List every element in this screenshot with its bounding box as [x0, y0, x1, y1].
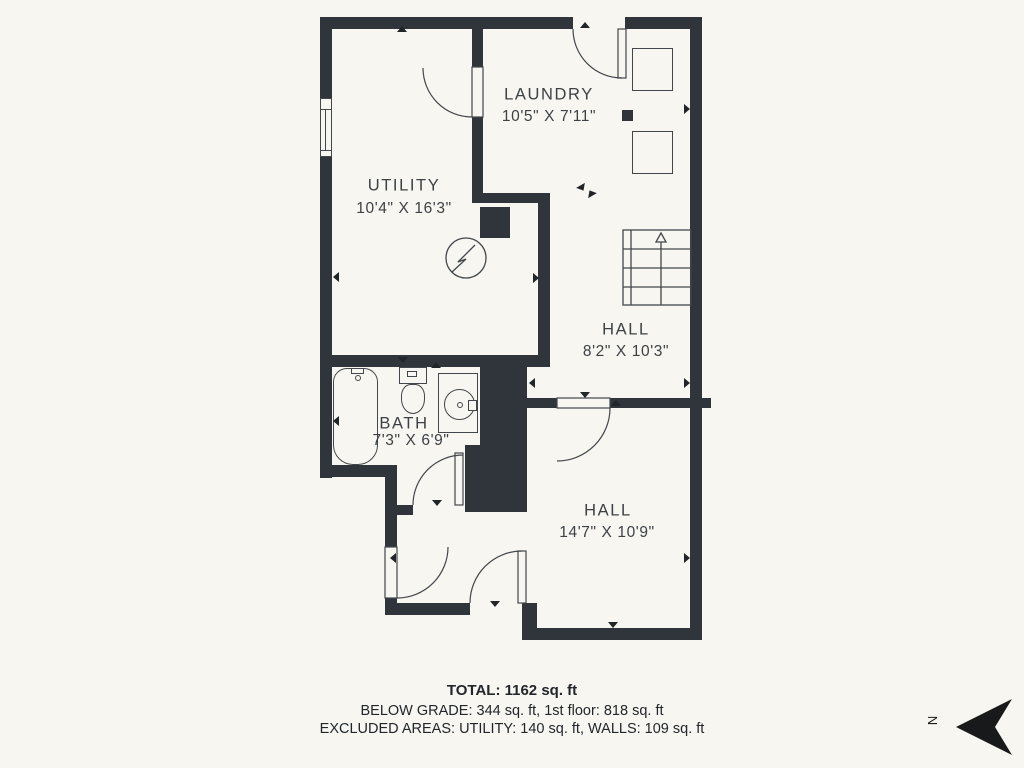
door-arc-laundry-top — [573, 29, 622, 78]
window-frame-line — [320, 109, 332, 110]
washer-box — [632, 48, 673, 91]
door-leaf-halls — [557, 398, 610, 408]
wall-upper-hall-left — [538, 203, 550, 367]
wall-marker-arrow — [684, 104, 690, 114]
wall-marker-arrow — [432, 500, 442, 506]
wall-marker-arrow — [684, 553, 690, 563]
wall-left-below-window — [320, 157, 332, 478]
wall-vestibule-bottom — [385, 603, 470, 615]
stairs — [623, 230, 691, 305]
room-dims-lower-hall: 14'7" X 10'9" — [559, 524, 654, 542]
wall-tub-bottom — [320, 465, 397, 477]
room-dims-laundry: 10'5" X 7'11" — [502, 108, 596, 126]
sink-faucet — [468, 400, 477, 411]
wall-entry-right — [522, 603, 537, 615]
door-arc-utility — [423, 68, 472, 117]
wall-center-mass-lower — [465, 445, 527, 512]
window-center-line — [325, 109, 326, 150]
toilet-flush-button — [407, 371, 417, 377]
wall-top-left — [320, 17, 573, 29]
door-arc-bath — [413, 455, 463, 505]
electrical-panel — [480, 207, 510, 238]
floor-plan-page: LAUNDRY 10'5" X 7'11" UTILITY 10'4" X 16… — [0, 0, 1024, 768]
wall-marker-arrow — [390, 553, 396, 563]
wall-halls-divider-left — [527, 398, 557, 408]
wall-halls-divider-right — [610, 398, 690, 408]
door-arc-halls — [557, 408, 610, 461]
dryer-box — [632, 131, 673, 174]
door-leaf-bath — [455, 453, 463, 505]
window — [320, 98, 332, 157]
wall-utility-laundry-divider-lower — [472, 117, 483, 195]
footer-excluded: EXCLUDED AREAS: UTILITY: 140 sq. ft, WAL… — [0, 721, 1024, 737]
wall-marker-arrow — [333, 272, 339, 282]
wall-vestibule-left-upper — [385, 465, 397, 547]
door-leaf-entry — [518, 551, 526, 603]
bathtub — [333, 368, 378, 465]
wall-bath-bottom — [397, 505, 413, 515]
toilet-bowl — [401, 384, 425, 414]
window-frame-line — [320, 150, 332, 151]
wall-marker-arrow — [333, 416, 339, 426]
wall-marker-arrow — [529, 378, 535, 388]
room-label-utility: UTILITY — [368, 177, 441, 196]
room-label-lower-hall: HALL — [584, 502, 632, 521]
footer-total: TOTAL: 1162 sq. ft — [0, 682, 1024, 699]
wall-lower-hall-bottom — [537, 628, 702, 640]
door-arc-vestibule-left — [397, 547, 448, 598]
room-dims-upper-hall: 8'2" X 10'3" — [583, 343, 669, 361]
laundry-outlet-square — [622, 110, 633, 121]
bathtub-faucet — [351, 368, 364, 374]
wall-marker-arrow — [580, 22, 590, 28]
door-leaf-laundry-top — [618, 29, 626, 78]
wall-right — [690, 17, 702, 640]
wall-right-stub — [702, 398, 711, 408]
wall-marker-arrow — [611, 400, 621, 406]
room-label-bath: BATH — [379, 415, 428, 434]
wall-marker-arrow — [684, 378, 690, 388]
wall-marker-arrow — [533, 273, 539, 283]
wall-step — [522, 615, 537, 640]
sink-drain — [457, 402, 463, 408]
room-label-upper-hall: HALL — [602, 321, 650, 340]
compass-label: N — [925, 716, 940, 725]
bathtub-drain — [355, 375, 361, 381]
wall-marker-arrow — [580, 392, 590, 398]
wall-marker-arrow — [398, 357, 408, 363]
room-label-laundry: LAUNDRY — [504, 86, 594, 105]
wall-utility-laundry-divider-upper — [472, 29, 483, 67]
door-arc-entry — [470, 551, 522, 603]
electric-meter-icon — [446, 238, 486, 278]
wall-marker-arrow — [397, 26, 407, 32]
wall-laundry-jog — [472, 193, 550, 203]
wall-left-above-window — [320, 17, 332, 98]
wall-marker-arrow — [490, 601, 500, 607]
footer-below-grade: BELOW GRADE: 344 sq. ft, 1st floor: 818 … — [0, 703, 1024, 719]
stairs-up-arrow-icon — [656, 233, 666, 242]
wall-marker-arrow — [608, 622, 618, 628]
door-leaf-utility — [472, 67, 483, 117]
room-dims-bath: 7'3" X 6'9" — [373, 432, 450, 450]
opening-flow-arrow — [585, 188, 597, 198]
wall-center-mass-upper — [480, 367, 527, 445]
room-dims-utility: 10'4" X 16'3" — [356, 200, 451, 218]
wall-marker-arrow — [431, 362, 441, 368]
